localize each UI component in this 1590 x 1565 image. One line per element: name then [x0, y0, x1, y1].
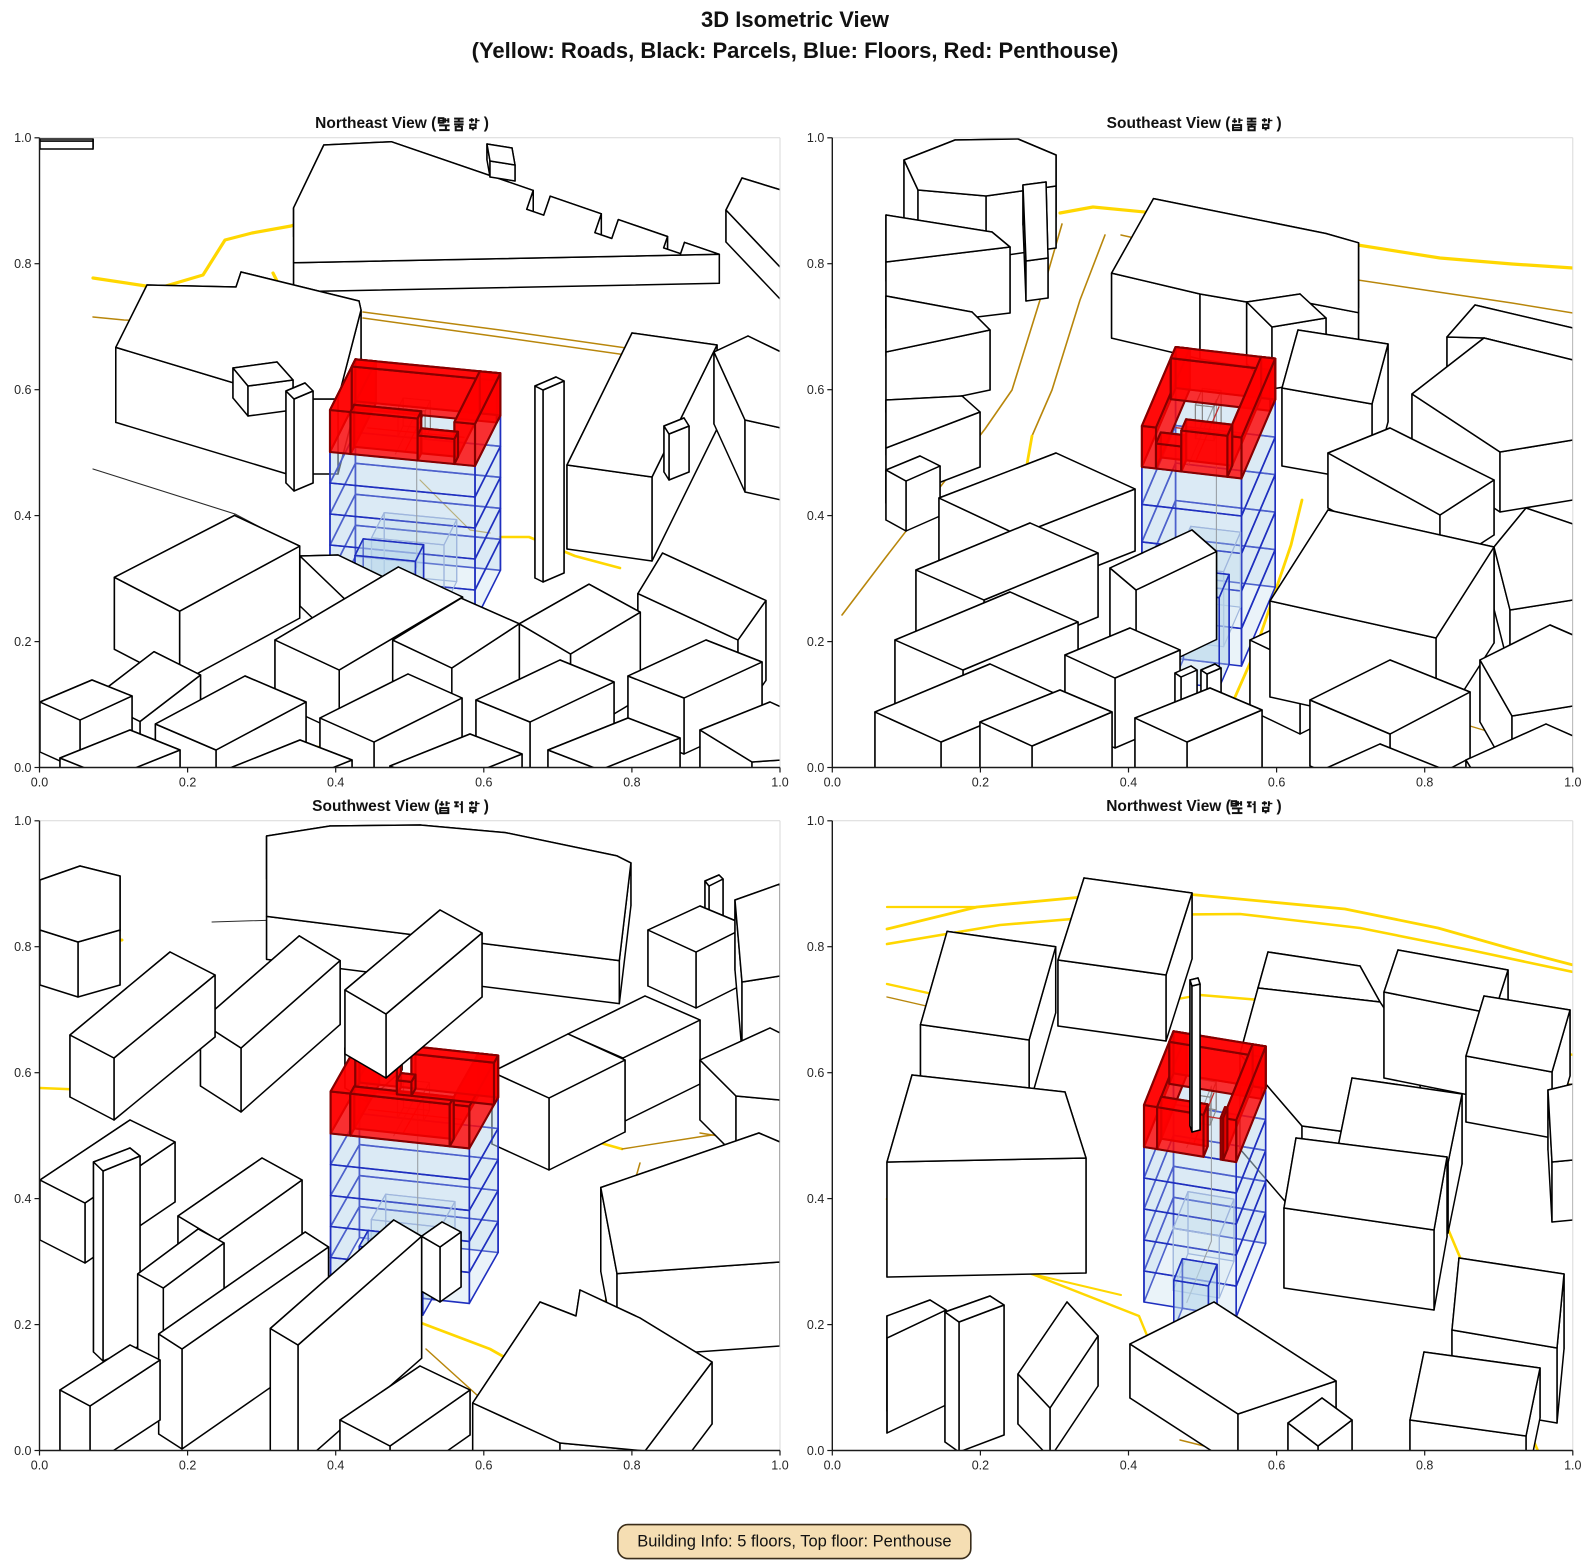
svg-text:0.6: 0.6	[1268, 776, 1285, 790]
svg-text:0.8: 0.8	[807, 940, 824, 954]
svg-text:0.4: 0.4	[327, 1459, 344, 1473]
svg-text:): )	[1277, 798, 1282, 815]
svg-text:Southeast View (: Southeast View (	[1107, 115, 1232, 132]
svg-text:0.6: 0.6	[14, 383, 31, 397]
svg-text:Southwest View (: Southwest View (	[312, 798, 440, 815]
svg-text:0.6: 0.6	[1268, 1459, 1285, 1473]
svg-text:0.2: 0.2	[14, 635, 31, 649]
svg-text:0.0: 0.0	[14, 761, 31, 775]
svg-text:1.0: 1.0	[807, 131, 824, 145]
svg-text:0.0: 0.0	[31, 776, 48, 790]
svg-text:0.0: 0.0	[807, 761, 824, 775]
svg-text:0.0: 0.0	[824, 1459, 841, 1473]
svg-text:0.6: 0.6	[14, 1066, 31, 1080]
svg-text:1.0: 1.0	[771, 776, 788, 790]
svg-text:): )	[484, 115, 489, 132]
svg-text:0.2: 0.2	[179, 776, 196, 790]
svg-text:): )	[484, 798, 489, 815]
svg-text:0.8: 0.8	[623, 776, 640, 790]
svg-text:0.4: 0.4	[807, 509, 824, 523]
svg-text:1.0: 1.0	[807, 814, 824, 828]
svg-text:0.8: 0.8	[14, 257, 31, 271]
svg-text:0.4: 0.4	[327, 776, 344, 790]
svg-text:1.0: 1.0	[1564, 776, 1581, 790]
svg-text:0.4: 0.4	[1120, 1459, 1137, 1473]
svg-text:0.8: 0.8	[807, 257, 824, 271]
svg-text:0.6: 0.6	[807, 383, 824, 397]
svg-text:0.8: 0.8	[1416, 1459, 1433, 1473]
svg-text:0.2: 0.2	[972, 776, 989, 790]
svg-text:0.2: 0.2	[14, 1318, 31, 1332]
svg-text:0.4: 0.4	[14, 509, 31, 523]
svg-text:1.0: 1.0	[14, 131, 31, 145]
svg-text:0.4: 0.4	[807, 1192, 824, 1206]
svg-text:0.0: 0.0	[14, 1444, 31, 1458]
svg-text:0.4: 0.4	[14, 1192, 31, 1206]
svg-text:0.6: 0.6	[475, 1459, 492, 1473]
svg-text:1.0: 1.0	[771, 1459, 788, 1473]
svg-text:0.8: 0.8	[14, 940, 31, 954]
svg-text:0.6: 0.6	[807, 1066, 824, 1080]
svg-text:0.0: 0.0	[824, 776, 841, 790]
svg-text:): )	[1277, 115, 1282, 132]
svg-text:0.4: 0.4	[1120, 776, 1137, 790]
svg-text:0.0: 0.0	[807, 1444, 824, 1458]
svg-text:(Yellow: Roads, Black: Parcels: (Yellow: Roads, Black: Parcels, Blue: Fl…	[472, 38, 1119, 63]
svg-text:Northwest View (: Northwest View (	[1106, 798, 1231, 815]
svg-text:0.8: 0.8	[1416, 776, 1433, 790]
svg-text:1.0: 1.0	[14, 814, 31, 828]
svg-text:1.0: 1.0	[1564, 1459, 1581, 1473]
svg-text:0.8: 0.8	[623, 1459, 640, 1473]
svg-text:3D Isometric View: 3D Isometric View	[701, 7, 890, 32]
svg-text:0.2: 0.2	[807, 635, 824, 649]
svg-text:0.2: 0.2	[972, 1459, 989, 1473]
svg-text:0.2: 0.2	[179, 1459, 196, 1473]
svg-text:0.2: 0.2	[807, 1318, 824, 1332]
svg-text:0.0: 0.0	[31, 1459, 48, 1473]
svg-text:0.6: 0.6	[475, 776, 492, 790]
svg-text:Building Info: 5 floors, Top f: Building Info: 5 floors, Top floor: Pent…	[637, 1533, 951, 1551]
svg-text:Northeast View (: Northeast View (	[315, 115, 437, 132]
